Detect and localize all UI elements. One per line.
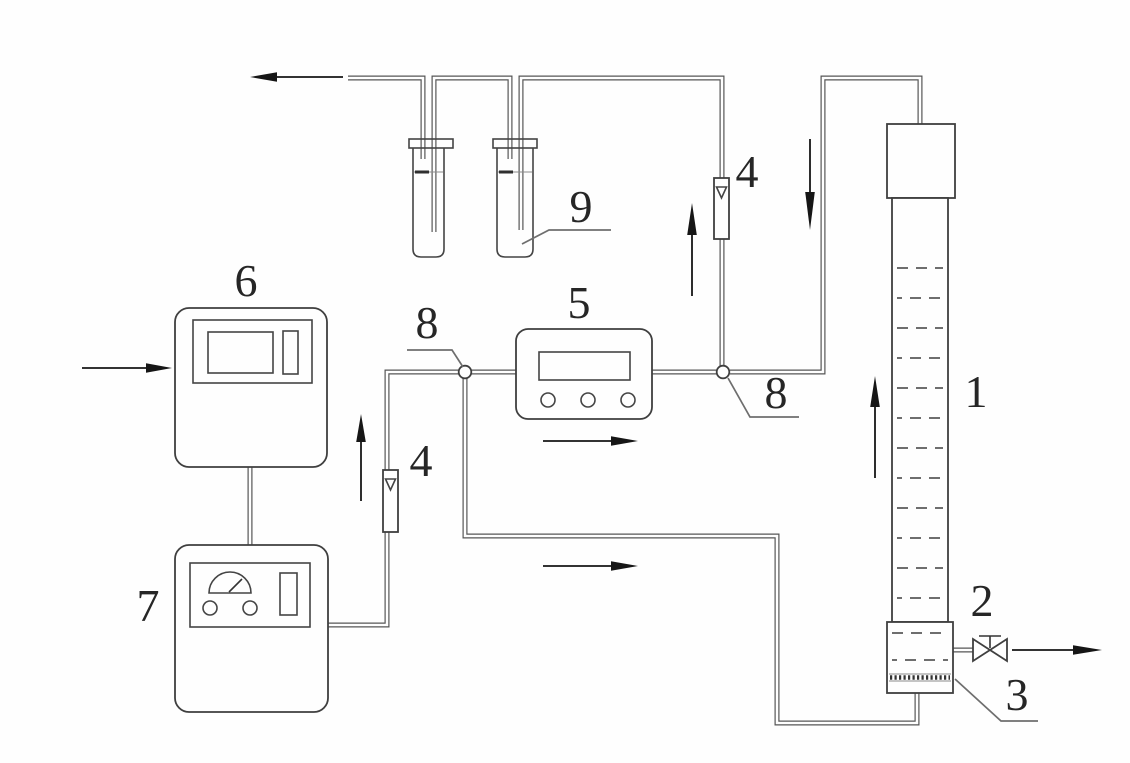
gas-washing-bottle-left — [409, 139, 453, 257]
flowmeter-left — [383, 470, 398, 532]
callout-analyzer-5: 5 — [568, 280, 591, 326]
callout-junction-left-8: 8 — [416, 300, 439, 346]
instrument-upper-box — [175, 308, 327, 467]
reaction-column — [887, 124, 955, 693]
callout-valve-2: 2 — [971, 578, 994, 624]
apparatus-diagram — [0, 0, 1130, 763]
flowmeter-right — [714, 178, 729, 239]
valve-bowtie-icon — [990, 639, 1007, 661]
junction-left — [459, 366, 472, 379]
up-arrow-middle-icon — [687, 203, 697, 296]
exhaust-left-arrow-icon — [250, 72, 343, 82]
right-arrow-lower-pipe-icon — [543, 561, 638, 571]
callout-instrument-6: 6 — [235, 258, 258, 304]
leader-junction-left — [407, 350, 463, 367]
leader-junction-right — [728, 378, 799, 417]
bottle-cap-icon — [409, 139, 453, 148]
column-top-cap — [887, 124, 955, 198]
callout-distributor-3: 3 — [1006, 672, 1029, 718]
up-arrow-column-icon — [870, 376, 880, 478]
leader-bottles — [522, 230, 611, 244]
callout-bottles-9: 9 — [570, 184, 593, 230]
inlet-arrow-icon — [82, 363, 172, 373]
callout-junction-right-8: 8 — [765, 370, 788, 416]
bottle-cap-icon — [493, 139, 537, 148]
diagram-canvas: 1 2 3 4 4 5 6 7 8 8 9 — [0, 0, 1130, 763]
drain-valve — [973, 636, 1007, 661]
valve-bowtie-icon — [973, 639, 990, 661]
up-arrow-left-icon — [356, 414, 366, 501]
analyzer-box — [516, 329, 652, 419]
down-arrow-icon — [805, 139, 815, 230]
junction-right — [717, 366, 730, 379]
callout-flowmeter-right-4: 4 — [736, 149, 759, 195]
outlet-right-arrow-icon — [1012, 645, 1102, 655]
instrument-lower-box — [175, 545, 328, 712]
column-body — [892, 198, 948, 622]
callout-column-1: 1 — [965, 369, 988, 415]
right-arrow-under-analyzer-icon — [543, 436, 638, 446]
callout-flowmeter-left-4: 4 — [410, 438, 433, 484]
callout-instrument-7: 7 — [137, 583, 160, 629]
